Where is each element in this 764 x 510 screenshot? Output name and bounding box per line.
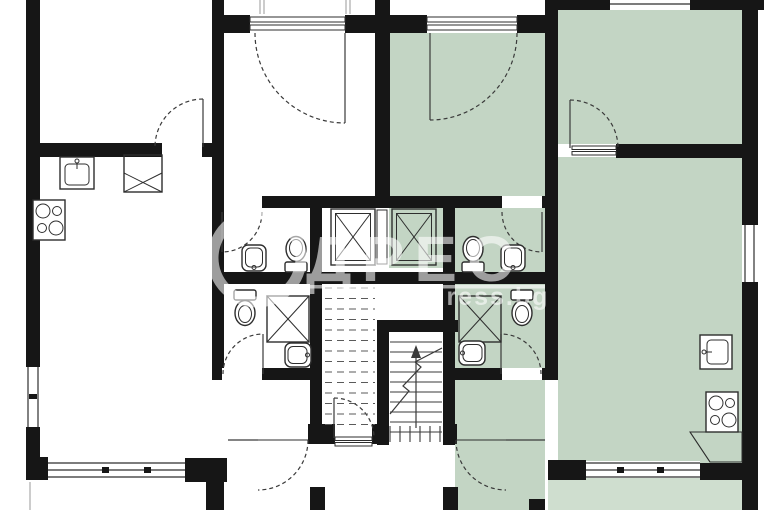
kitchen-counter-icon — [124, 155, 162, 192]
door-stairwell — [334, 398, 374, 446]
kitchen-sink-icon — [700, 335, 732, 369]
watermark-domain-text: address.bg — [396, 283, 549, 311]
room-bedroom-1 — [390, 33, 545, 196]
window-balcony-right — [586, 461, 700, 478]
stove-icon — [706, 392, 738, 432]
room-hallway — [455, 380, 545, 510]
window-top-right — [610, 0, 690, 10]
window-right-wall — [742, 225, 758, 282]
floor-plan-page: ДРЕС address.bg — [0, 0, 764, 510]
floor-plan: ДРЕС address.bg — [0, 0, 764, 510]
stairs-upper-flight-dashed — [325, 288, 375, 425]
stairs-direction-arrow — [390, 345, 442, 428]
window-left-wall — [26, 367, 40, 427]
wash-basin-icon — [242, 245, 266, 271]
kitchen-sink-icon — [60, 157, 94, 189]
door-wc-left — [223, 334, 263, 374]
wash-basin-icon — [459, 341, 485, 365]
door-bedroom2-threshold — [572, 146, 616, 155]
door-top-left-room — [250, 17, 345, 123]
window-balcony-left — [48, 461, 185, 478]
door-kitchen-left — [155, 99, 203, 147]
stove-icon — [33, 200, 65, 240]
room-bedroom-2 — [558, 10, 742, 144]
wash-basin-icon — [285, 343, 311, 367]
